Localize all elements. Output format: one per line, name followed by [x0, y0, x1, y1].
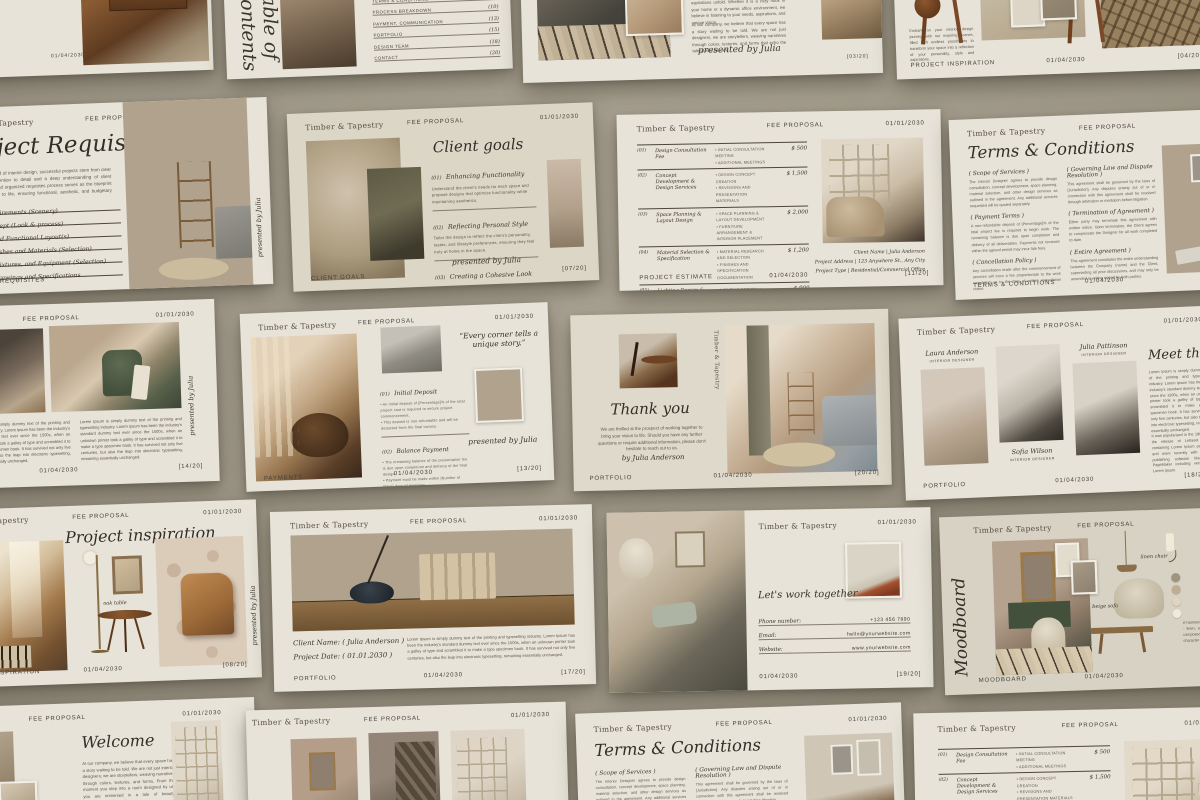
header-date: 01/01/2030: [203, 509, 242, 516]
contact-row: Website:www.yourwebsite.com: [759, 638, 911, 655]
slide-moodboard: Timber & Tapestry FEE PROPOSAL Moodboard…: [939, 507, 1200, 695]
page-number: [07/20]: [562, 266, 587, 273]
toc-script-title: Table of Contents: [235, 0, 283, 79]
spread-paragraph-1: Lorem Ipsum is simply dummy text of the …: [0, 420, 71, 466]
slide-project-requisites: Timber & Tapestry FEE PROPOSAL Project R…: [0, 97, 273, 296]
estimate-row: (01)Design Consultation Fee• INITIAL CON…: [938, 745, 1110, 774]
page-number: [20/20]: [855, 470, 880, 477]
ladder-shelf: [787, 372, 814, 435]
brand-name: Timber & Tapestry: [0, 118, 34, 130]
page-number: [18/20]: [1184, 472, 1200, 479]
footer-date: 01/04/2030: [769, 273, 808, 280]
footer-date: 01/04/2030: [84, 666, 123, 673]
side-table: [98, 609, 153, 653]
photo-fabric-inset: [624, 0, 684, 36]
photo-team-member: [920, 367, 988, 466]
member-role: INTERIOR DESIGNER: [1072, 351, 1136, 358]
drawer-front: [108, 0, 187, 11]
doc-label: FEE PROPOSAL: [29, 715, 86, 723]
gray-sofa: [822, 395, 877, 446]
header-date: 01/01/2030: [182, 710, 221, 717]
annotation-script: beige sofa: [1092, 603, 1118, 610]
brand-name: Timber & Tapestry: [258, 320, 337, 332]
brand-name: Timber & Tapestry: [759, 521, 838, 531]
doc-label: FEE PROPOSAL: [410, 518, 467, 525]
rug-pattern: [1096, 0, 1200, 48]
photo-tan-sofa: [817, 0, 882, 40]
client-name-line: Client Name: ( Julia Anderson ): [293, 637, 404, 648]
photo-wood-chair-table: [619, 333, 678, 388]
footer-date: 01/04/2030: [424, 672, 463, 679]
photo-bookcase-room: [450, 729, 528, 800]
header-date: 01/01/2030: [1184, 720, 1200, 727]
photo-wood-stool: [0, 328, 46, 414]
brand-name: Timber & Tapestry: [917, 325, 996, 337]
pendant-light: [1116, 530, 1138, 577]
footer-date: 01/04/2030: [759, 674, 798, 681]
estimate-table: (01)Design Consultation Fee• INITIAL CON…: [637, 142, 811, 291]
brand-name: Timber & Tapestry: [637, 123, 716, 133]
slide-contact: Timber & Tapestry 01/01/2030 Let's work …: [606, 507, 933, 693]
vertical-title: Moodboard: [948, 556, 972, 677]
photo-patterned-rug: [1096, 0, 1200, 48]
header-date: 01/01/2030: [155, 312, 194, 319]
dried-stem: [367, 535, 388, 584]
header-date: 01/01/2030: [1164, 317, 1200, 325]
photo-library-fireplace: [1124, 739, 1200, 800]
estimate-row: (01)Design Consultation Fee• INITIAL CON…: [637, 142, 807, 170]
photo-dark-dresser: [804, 733, 897, 800]
doc-label: FEE PROPOSAL: [23, 315, 80, 323]
project-date-line: Project Date: ( 01.01.2030 ): [293, 651, 392, 661]
doc-label: FEE PROPOSAL: [767, 122, 824, 129]
photo-vanity-scene: [291, 737, 361, 800]
terms-col-1: ( Scope of Services )The Interior Design…: [595, 768, 688, 800]
header-date: 01/01/2030: [539, 515, 578, 522]
doc-label: FEE PROPOSAL: [1061, 722, 1118, 729]
photo-living-room: [724, 323, 877, 474]
slide-project-inspiration: Timber & Tapestry FEE PROPOSAL 01/01/203…: [0, 499, 262, 688]
slide-thank-you: Thank you We are thrilled at the prospec…: [570, 309, 892, 492]
footer-date: 01/04/2030: [1055, 477, 1094, 485]
footer-date: 01/04/2030: [1046, 57, 1085, 64]
board-note: Embark on your interior design journey w…: [909, 27, 974, 64]
sconce-shade: [1166, 533, 1175, 551]
doc-label: FEE PROPOSAL: [1027, 322, 1084, 330]
doc-label: FEE PROPOSAL: [358, 318, 415, 326]
swatch-dot: [1172, 597, 1181, 606]
doc-label: FEE PROPOSAL: [716, 720, 773, 728]
header-date: 01/01/2030: [495, 314, 534, 321]
slide-intro: aspirations unfold. Whether it is a cozy…: [517, 0, 883, 83]
presented-by-script: presented by Julia: [185, 336, 196, 436]
photo-hallway-panels: [368, 731, 442, 800]
brand-name: Timber & Tapestry: [290, 520, 369, 531]
swatch-dot: [1172, 609, 1181, 618]
goals-list: (01) Enhancing Functionality Understand …: [431, 162, 540, 291]
slide-title: Meet the team: [1148, 344, 1200, 363]
mirror: [309, 752, 336, 791]
header-date: 01/01/2030: [511, 712, 550, 719]
photo-bookcase: [171, 720, 226, 800]
page-number: [04/20]: [1178, 53, 1200, 60]
slide-title: Terms & Conditions: [967, 137, 1134, 163]
header-date: 01/01/2030: [848, 716, 887, 723]
curtain-light: [251, 336, 300, 458]
photo-dresser-small: [474, 367, 524, 423]
footer-section: PORTFOLIO: [923, 482, 966, 490]
page-number: [13/20]: [517, 465, 542, 472]
photo-team-member: [996, 344, 1064, 443]
doc-label: FEE PROPOSAL: [407, 118, 464, 126]
rug-pattern: [996, 646, 1093, 675]
bench-leg: [1140, 632, 1146, 652]
terms-col-1: ( Scope of Services )The Interior Design…: [969, 168, 1062, 298]
wood-bench: [1091, 626, 1154, 656]
gray-sofa: [214, 206, 252, 259]
ladder-shelf: [177, 161, 214, 248]
photo-lamp-armchair: [606, 510, 747, 692]
footer-date: 01/04/2030: [39, 467, 78, 474]
presented-by-script: presented by Julia: [247, 535, 259, 645]
photo-bedroom-shelf: [123, 98, 254, 289]
slide-terms-conditions: Timber & Tapestry FEE PROPOSAL Terms & C…: [949, 108, 1200, 300]
photo-vanity: [274, 0, 357, 69]
team-paragraph-1: Lorem Ipsum is simply dummy text of the …: [1149, 368, 1200, 435]
round-rug: [763, 442, 835, 468]
brand-name: Timber & Tapestry: [594, 722, 673, 734]
member-role: INTERIOR DESIGNER: [920, 357, 984, 364]
slide-portfolio-grid: Timber & Tapestry FEE PROPOSAL 01/01/203…: [246, 702, 571, 800]
swatch-dot: [1171, 585, 1180, 594]
requisites-list: Spatial Requirements (Scenery) Design Co…: [0, 197, 123, 281]
chevron-panel: [395, 741, 437, 800]
table-leg: [124, 619, 127, 652]
thankyou-body: We are thrilled at the prospect of worki…: [597, 425, 708, 455]
walnut-disc: [914, 0, 941, 19]
curtain: [746, 325, 771, 455]
slide-project-estimate: Timber & Tapestry FEE PROPOSAL 01/01/203…: [616, 109, 943, 291]
signature-script: by Julia Anderson: [603, 453, 703, 463]
payment-item: (01) Initial Deposit • An initial deposi…: [379, 379, 469, 432]
photo-beanbag-room: [251, 334, 362, 482]
payment-item: (03) Accepted Payment Methods • We accep…: [384, 490, 474, 492]
mirror: [1020, 551, 1056, 602]
window-light: [9, 541, 42, 638]
slide-title: Terms & Conditions: [594, 735, 761, 760]
footer-section: PROJECT REQUISITES: [0, 277, 45, 286]
footer-section: PORTFOLIO: [294, 675, 337, 682]
page-number: [11/20]: [905, 270, 929, 276]
terms-col-2: ( Governing Law and Dispute Resolution )…: [695, 764, 790, 800]
estimate-table: (01)Design Consultation Fee• INITIAL CON…: [938, 745, 1113, 800]
annotation-script: oak table: [103, 600, 127, 607]
photo-framed-chair: [0, 781, 38, 800]
doc-label: FEE PROPOSAL: [72, 513, 129, 521]
page-number: [14/20]: [179, 463, 204, 470]
template-collage: { "background": {"color": "#a49d8e"}, "b…: [0, 0, 1200, 800]
doc-label: FEE PROPOSAL: [1077, 522, 1134, 530]
round-rug: [158, 256, 229, 281]
doc-label: FEE PROPOSAL: [364, 716, 421, 724]
presented-by-script: presented by Julia: [684, 43, 794, 56]
member-name: Julia Pattinson: [1072, 341, 1136, 352]
slide-title: Welcome: [81, 730, 155, 752]
brand-name: Timber & Tapestry: [0, 515, 29, 527]
swatch-dot: [1171, 573, 1180, 582]
slide-payments: Timber & Tapestry FEE PROPOSAL 01/01/203…: [240, 302, 555, 492]
estimate-row: (03)Space Planning & Layout Design• SPAC…: [638, 205, 809, 246]
slide-title: Client goals: [426, 135, 531, 157]
page-number: [17/20]: [561, 669, 586, 676]
welcome-paragraph-1: At our company, we believe that every sp…: [82, 758, 176, 800]
contact-rows: Phone number:+123 456 7890 Email:hello@y…: [758, 610, 911, 655]
presented-by-script: presented by Julia: [252, 137, 264, 257]
slide-client-goals: Timber & Tapestry FEE PROPOSAL 01/01/203…: [287, 102, 600, 292]
page-number: [08/20]: [223, 662, 248, 669]
picture-frame: [1190, 154, 1200, 183]
pendant-shade: [1117, 564, 1137, 572]
slide-inspiration-board: MATERIALS Embark on your interior design…: [889, 0, 1200, 80]
vertical-brand: Timber & Tapestry: [713, 330, 721, 426]
slide-fee-table-2: Timber & Tapestry FEE PROPOSAL 01/01/203…: [913, 707, 1200, 800]
photo-gray-sofa: [380, 325, 442, 373]
photo-team-member: [1072, 361, 1140, 456]
table-leg: [134, 618, 145, 649]
framed-art: [675, 531, 706, 568]
brand-name: Timber & Tapestry: [252, 716, 331, 727]
footer-date: 01/04/2030: [1085, 673, 1124, 680]
framed-art: [112, 555, 143, 594]
member-name: Sofia Wilson: [1000, 446, 1064, 457]
page-number: [19/20]: [897, 671, 922, 677]
header-date: 01/01/2030: [886, 120, 925, 127]
toc-list: TERMS & CONDITIONS(07) PROCESS BREAKDOWN…: [372, 0, 501, 62]
estimate-row: (02)Concept Development & Design Service…: [939, 771, 1112, 800]
color-swatch-dots: [1171, 573, 1182, 621]
terms-col-2: ( Governing Law and Dispute Resolution )…: [1067, 164, 1160, 288]
brand-name: Timber & Tapestry: [973, 523, 1052, 535]
picture-frame: [856, 739, 881, 776]
floral-wallpaper-panel: [155, 536, 247, 667]
member-role: INTERIOR DESIGNER: [1000, 456, 1064, 463]
photo-sideboard-still-life: [290, 529, 574, 632]
slide-title: Thank you: [592, 398, 708, 418]
table-top: [641, 355, 677, 364]
brand-name: Timber & Tapestry: [305, 120, 384, 132]
goal-item: (02) Reflecting Personal Style Tailor th…: [433, 212, 539, 261]
photo-library-sofa: [821, 137, 925, 243]
cabinet: [292, 595, 575, 632]
slide-table-of-contents: Table of Contents TERMS & CONDITIONS(07)…: [217, 0, 513, 79]
picture-frame: [830, 744, 853, 775]
team-paragraph-2: It was popularised in the 1960s with the…: [1151, 432, 1200, 476]
bookcase-grid: [1132, 747, 1195, 800]
rug-pattern: [0, 645, 32, 669]
footer-section: PROJECT ESTIMATE: [639, 274, 713, 281]
sconce-arm: [1168, 550, 1176, 562]
quote-text: “Every corner tells a unique story.”: [453, 328, 546, 350]
footer-section: PORTFOLIO: [590, 475, 633, 482]
throw-blanket: [131, 365, 151, 401]
photo-green-armchair: [49, 322, 182, 412]
slide-welcome: FEE PROPOSAL 01/01/2030 Welcome At our c…: [0, 697, 260, 800]
page-number: [03/20]: [847, 53, 869, 60]
header-date: 01/01/2030: [540, 114, 579, 121]
photo-leather-chair-room: [0, 540, 68, 674]
chair-back: [631, 342, 639, 376]
laptop: [1175, 246, 1200, 264]
photo-wood-drawer: [76, 0, 209, 65]
brand-name: Timber & Tapestry: [938, 723, 1017, 734]
material-swatch-card: [1039, 0, 1077, 20]
contact-script-title: Let's work together: [758, 588, 858, 601]
pendant-stem: [1125, 531, 1127, 565]
cover-date: 01/04/2030: [51, 52, 85, 59]
footer-section: PAYMENTS: [264, 475, 304, 483]
brand-name: Timber & Tapestry: [967, 126, 1046, 138]
feature-paragraph: Lorem Ipsum is simply dummy text of the …: [407, 633, 576, 662]
black-vase: [350, 581, 395, 604]
vertical-title: Portfolio: [255, 744, 277, 800]
leather-recliner: [180, 572, 234, 636]
doc-label: FEE PROPOSAL: [1079, 124, 1136, 132]
footer-date: 01/04/2030: [714, 473, 753, 480]
bookcase-grid: [457, 737, 509, 800]
annotation-script: linen chair: [1140, 553, 1167, 560]
slide-terms-conditions-2: Timber & Tapestry FEE PROPOSAL 01/01/203…: [575, 702, 907, 800]
photo-sideboard-laptop: [1162, 142, 1200, 273]
photo-hall-shelf: [547, 159, 584, 248]
footer-section: PROJECT INSPIRATION: [0, 669, 40, 678]
velvet-sofa: [826, 196, 885, 237]
bench-leg: [1098, 634, 1103, 654]
linen-armchair: [1113, 578, 1164, 620]
moodboard-note: A harmony of textures and tones - linen,…: [1183, 619, 1200, 644]
goal-item: (01) Enhancing Functionality Understand …: [431, 162, 537, 211]
photo-shelf-inset: [367, 167, 424, 261]
slide-portfolio-feature: Timber & Tapestry FEE PROPOSAL 01/01/203…: [270, 504, 596, 692]
estimate-row: (02)Concept Development & Design Service…: [637, 167, 808, 208]
travertine-sculpture: [419, 552, 496, 600]
header-date: 01/01/2030: [878, 519, 917, 526]
table-leg: [107, 619, 116, 651]
slide-meet-the-team: Timber & Tapestry FEE PROPOSAL 01/01/203…: [898, 305, 1200, 500]
slide-cover: 01/04/2030: [0, 0, 214, 80]
bookcase-grid: [175, 726, 220, 800]
wall-sconce: [1162, 533, 1179, 566]
member-name: Laura Anderson: [920, 347, 984, 358]
spread-paragraph-2: Lorem Ipsum is simply dummy text of the …: [80, 416, 183, 462]
slide-portfolio-spread: FEE PROPOSAL 01/01/2030 presented by Jul…: [0, 299, 220, 489]
material-swatch-card: [1071, 560, 1098, 595]
footer-section: CLIENT GOALS: [311, 274, 366, 282]
footer-section: MOODBOARD: [979, 676, 1027, 684]
table-lamp: [619, 538, 654, 579]
